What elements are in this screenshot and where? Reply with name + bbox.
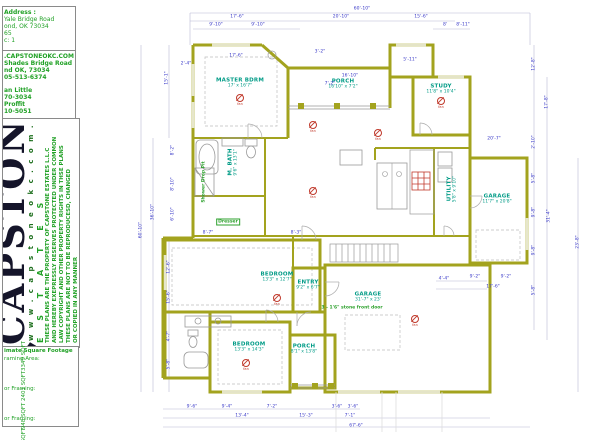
stairs [330, 244, 398, 262]
door-swings [248, 123, 482, 326]
porch-posts [268, 51, 390, 389]
windows [165, 45, 527, 392]
walls-interior [193, 138, 470, 312]
floor-plan-sheet: { "title_block": { "address": { "line1":… [0, 0, 600, 440]
kitchen-island [377, 150, 434, 214]
floor-plan-drawing [0, 0, 600, 440]
driveway [336, 392, 442, 432]
dimension-lines [141, 13, 578, 427]
cooktop-icon [412, 172, 430, 190]
